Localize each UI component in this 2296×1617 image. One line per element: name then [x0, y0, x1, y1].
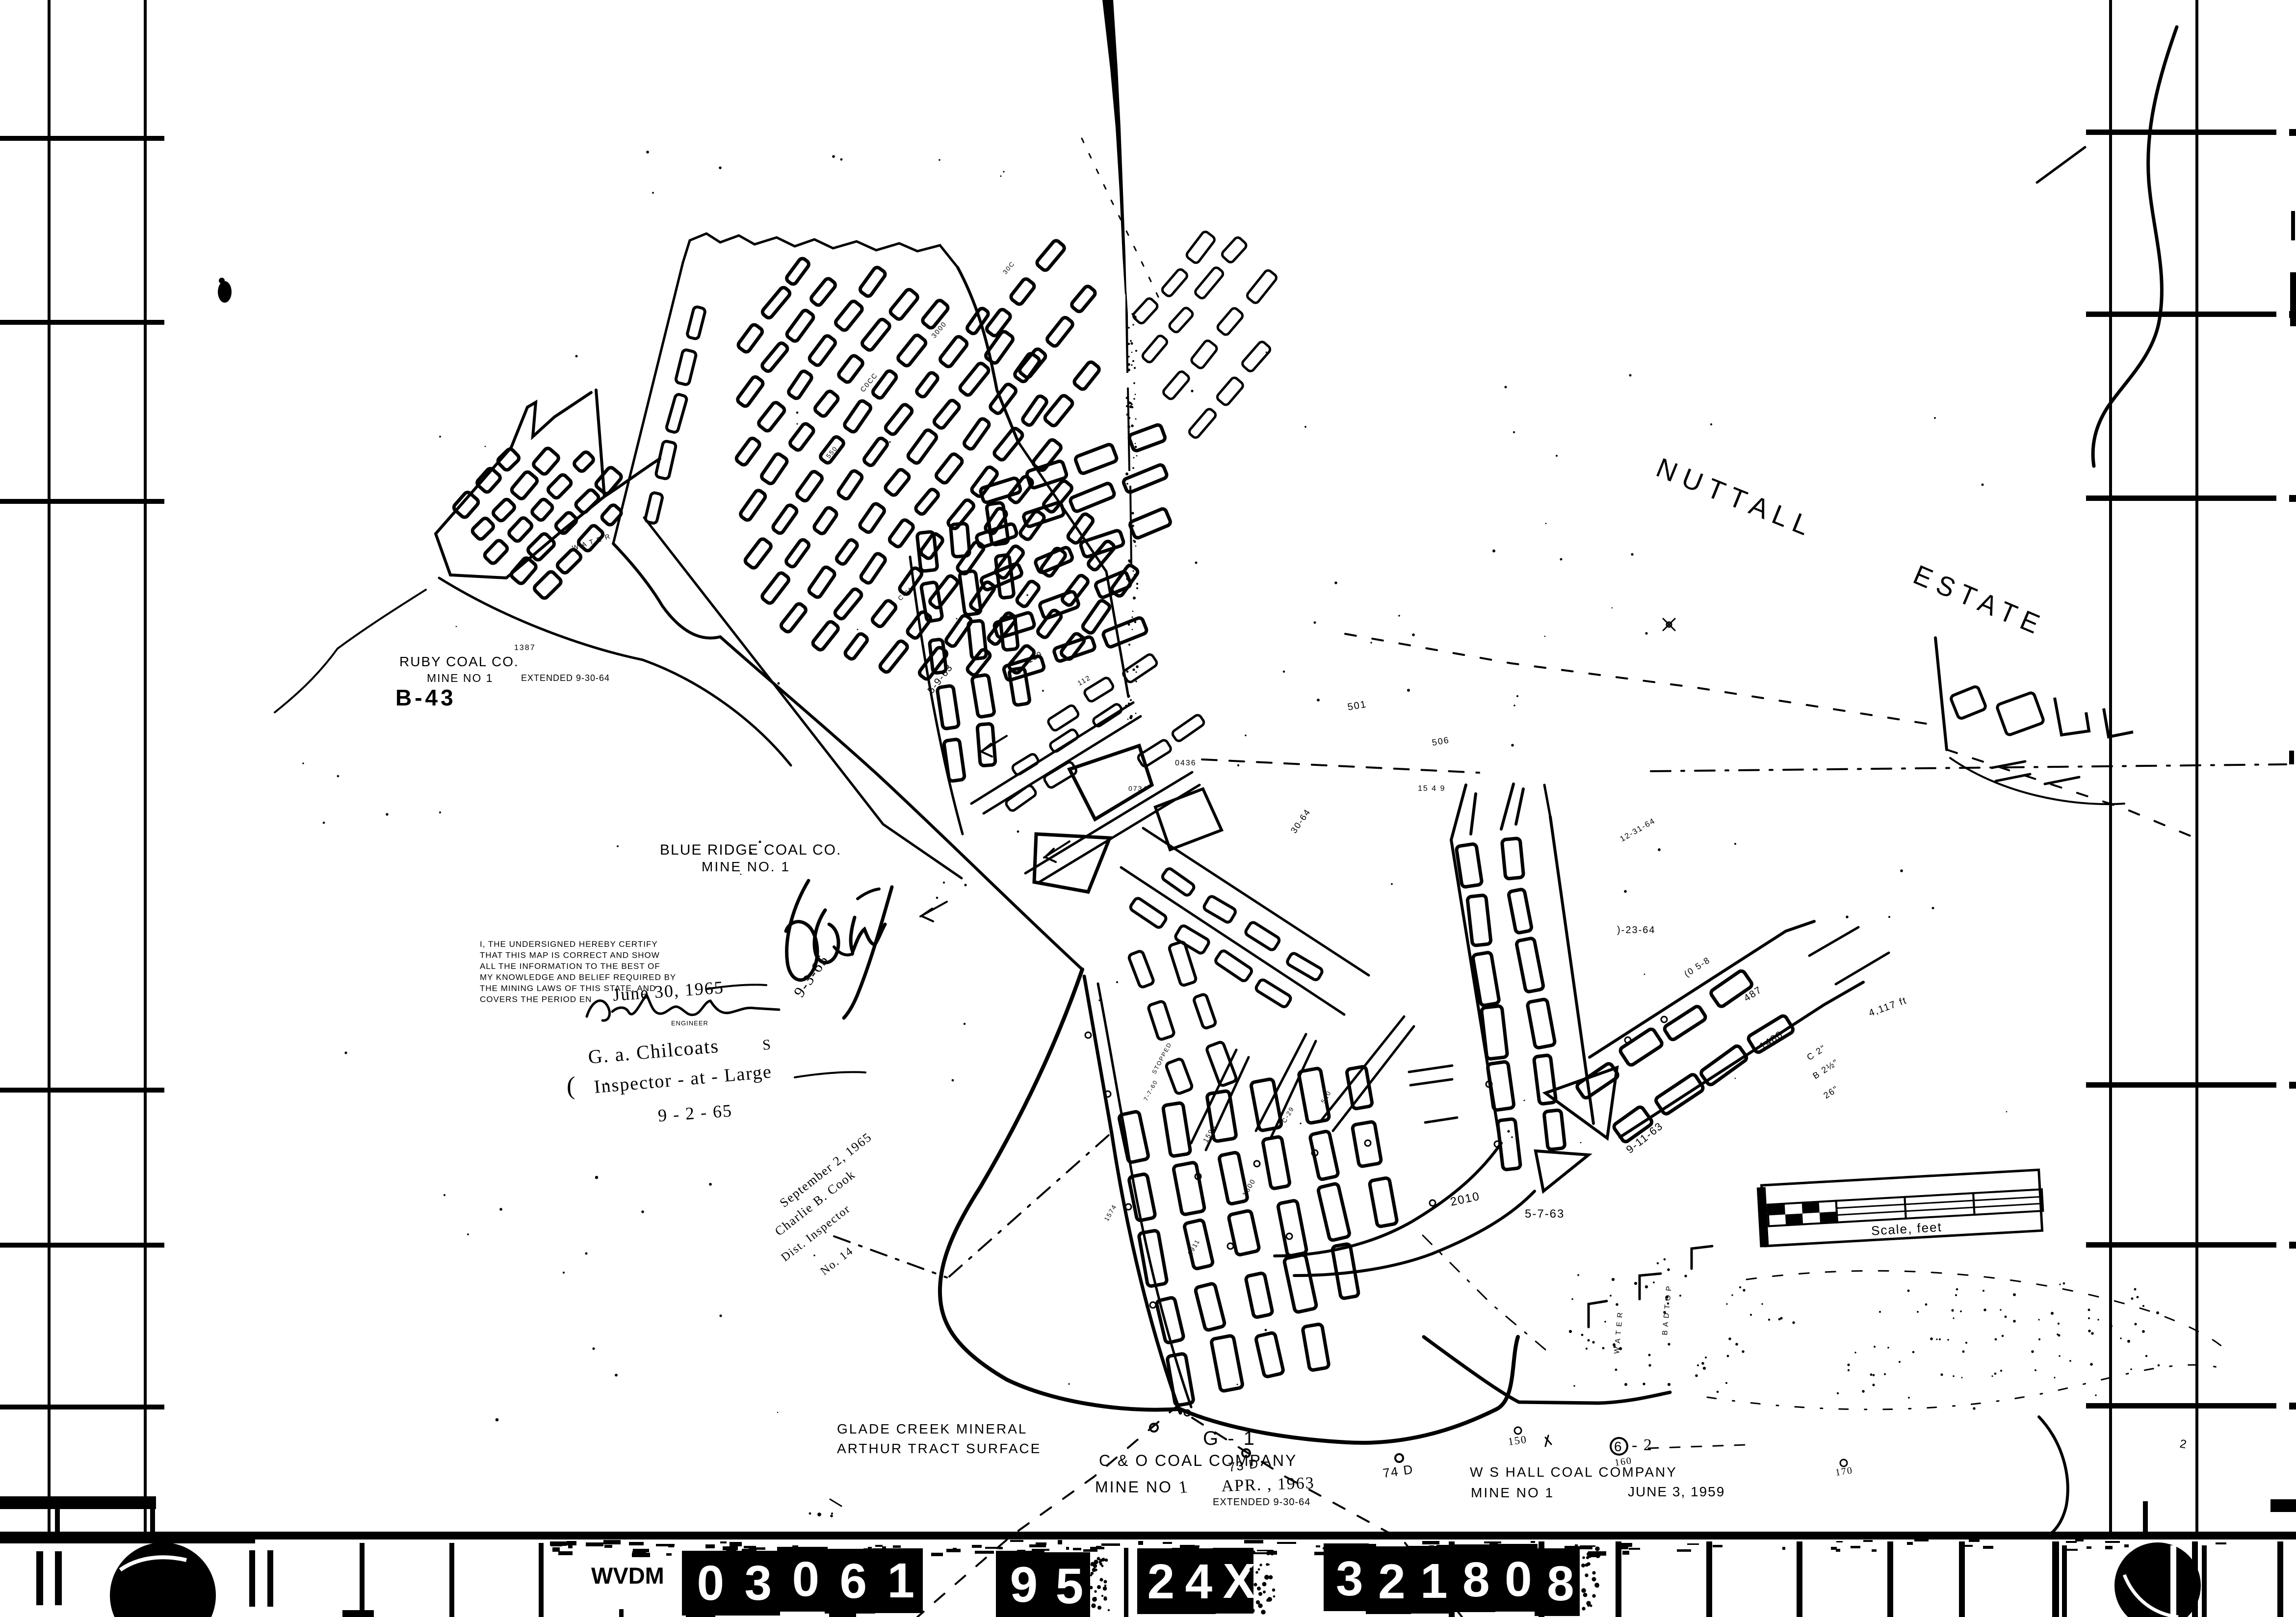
- svg-text:C & O COAL COMPANY: C & O COAL COMPANY: [1099, 1452, 1297, 1469]
- svg-text:RUBY COAL CO.: RUBY COAL CO.: [399, 654, 519, 669]
- svg-text:THAT THIS MAP IS CORRECT AND S: THAT THIS MAP IS CORRECT AND SHOW: [480, 951, 660, 960]
- svg-text:15 4 9: 15 4 9: [1418, 784, 1445, 793]
- svg-text:0: 0: [1505, 1552, 1533, 1607]
- svg-text:0734: 0734: [1128, 784, 1148, 792]
- svg-text:8: 8: [1462, 1552, 1491, 1607]
- svg-text:COVERS THE PERIOD EN: COVERS THE PERIOD EN: [480, 995, 592, 1004]
- svg-text:9: 9: [1010, 1557, 1039, 1613]
- svg-text:)-23-64: )-23-64: [1617, 925, 1655, 936]
- svg-text:WVDM: WVDM: [591, 1563, 664, 1589]
- svg-text:3: 3: [1336, 1551, 1364, 1606]
- svg-text:MINE NO 1: MINE NO 1: [427, 672, 494, 684]
- svg-text:ENGINEER: ENGINEER: [671, 1019, 708, 1027]
- svg-text:1: 1: [1420, 1554, 1449, 1609]
- svg-text:1387: 1387: [514, 644, 536, 652]
- svg-text:2: 2: [1378, 1554, 1407, 1609]
- svg-text:MY KNOWLEDGE AND BELIEF REQUIR: MY KNOWLEDGE AND BELIEF REQUIRED BY: [480, 973, 676, 982]
- svg-text:G - 1: G - 1: [1203, 1428, 1256, 1449]
- svg-text:MINE NO 1: MINE NO 1: [1471, 1485, 1554, 1500]
- svg-text:GLADE CREEK MINERAL: GLADE CREEK MINERAL: [837, 1421, 1027, 1436]
- svg-text:5-7-63: 5-7-63: [1525, 1207, 1565, 1221]
- svg-text:0436: 0436: [1175, 759, 1197, 767]
- svg-text:5: 5: [1056, 1558, 1085, 1614]
- svg-text:- 2: - 2: [1632, 1436, 1653, 1454]
- svg-text:(: (: [567, 1072, 576, 1100]
- svg-text:I, THE UNDERSIGNED HEREBY CERT: I, THE UNDERSIGNED HEREBY CERTIFY: [480, 939, 658, 949]
- svg-text:0: 0: [697, 1556, 726, 1611]
- svg-text:W S HALL COAL COMPANY: W S HALL COAL COMPANY: [1470, 1464, 1677, 1480]
- svg-text:ARTHUR TRACT SURFACE: ARTHUR TRACT SURFACE: [837, 1441, 1041, 1456]
- svg-text:6: 6: [1614, 1439, 1623, 1454]
- svg-text:EXTENDED 9-30-64: EXTENDED 9-30-64: [521, 673, 610, 683]
- svg-text:BLUE RIDGE COAL CO.: BLUE RIDGE COAL CO.: [660, 842, 841, 858]
- svg-text:6: 6: [840, 1554, 868, 1609]
- svg-text:2: 2: [1148, 1554, 1176, 1609]
- svg-text:X: X: [1223, 1554, 1257, 1609]
- svg-text:B-43: B-43: [395, 685, 456, 710]
- svg-text:ALL THE INFORMATION TO THE BES: ALL THE INFORMATION TO THE BEST OF: [480, 962, 660, 971]
- svg-text:0: 0: [792, 1552, 821, 1607]
- svg-text:4: 4: [1185, 1554, 1214, 1609]
- svg-text:EXTENDED 9-30-64: EXTENDED 9-30-64: [1213, 1497, 1310, 1508]
- svg-text:8: 8: [1547, 1556, 1575, 1611]
- svg-text:MINE NO. 1: MINE NO. 1: [702, 859, 790, 874]
- svg-text:APR. , 1963: APR. , 1963: [1221, 1474, 1315, 1495]
- svg-text:MINE NO: MINE NO: [1095, 1478, 1173, 1496]
- svg-text:3: 3: [745, 1556, 773, 1611]
- svg-text:JUNE 3, 1959: JUNE 3, 1959: [1628, 1484, 1725, 1499]
- svg-text:1: 1: [887, 1553, 916, 1608]
- svg-text:S: S: [762, 1036, 772, 1053]
